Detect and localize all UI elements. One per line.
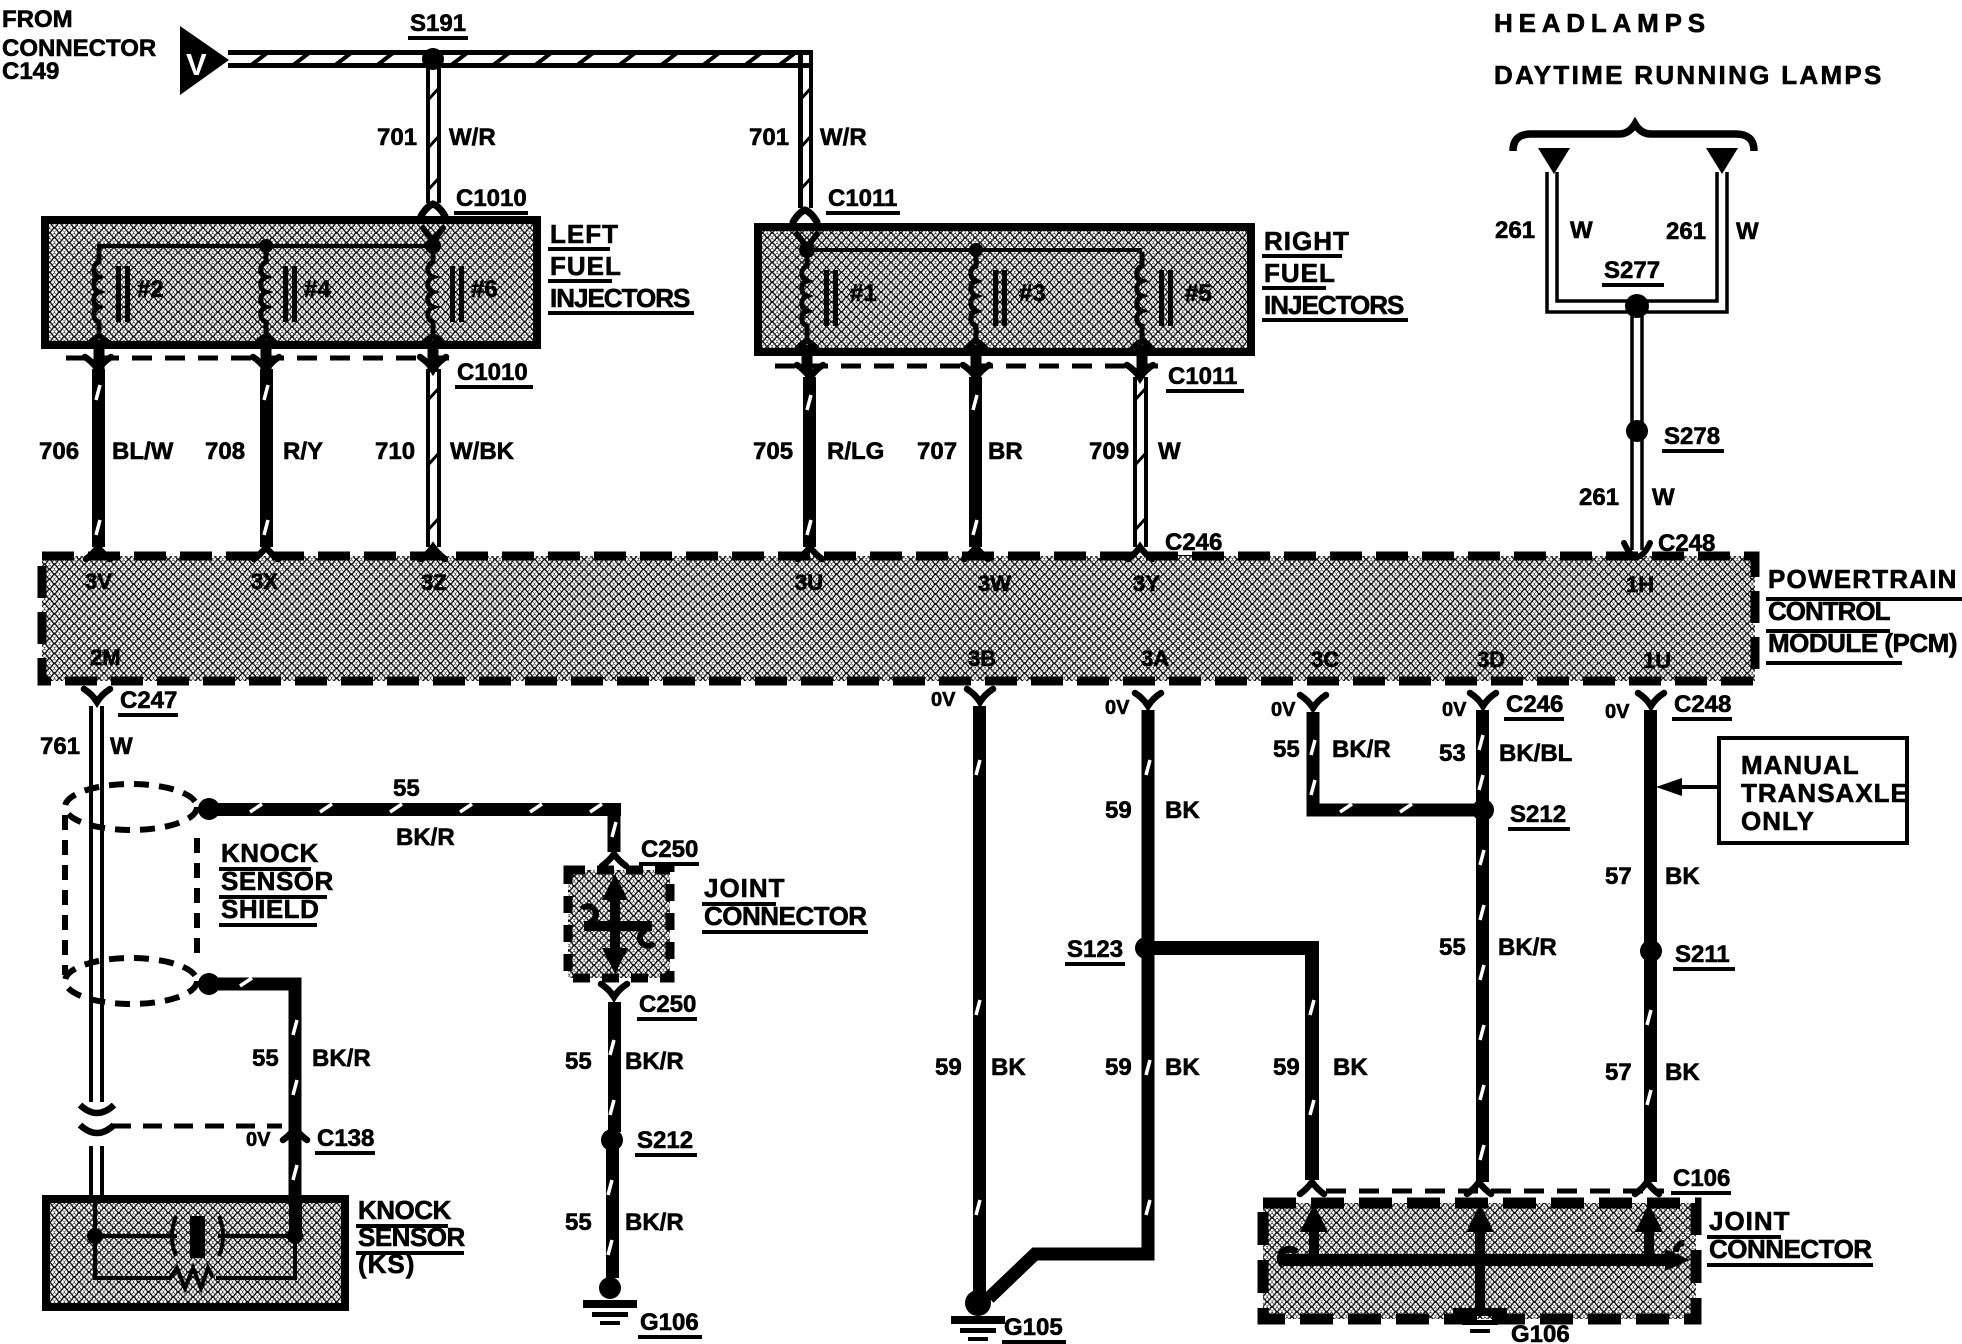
svg-text:701: 701	[749, 124, 789, 151]
svg-text:0V: 0V	[931, 689, 956, 711]
svg-text:W/BK: W/BK	[450, 438, 515, 465]
svg-text:G106: G106	[640, 1309, 699, 1336]
svg-text:JOINT: JOINT	[1709, 1206, 1791, 1236]
svg-text:#5: #5	[1185, 280, 1212, 307]
svg-text:55: 55	[252, 1045, 279, 1072]
svg-text:C138: C138	[317, 1125, 374, 1152]
svg-text:INJECTORS: INJECTORS	[1264, 290, 1404, 320]
svg-text:57: 57	[1605, 863, 1632, 890]
svg-text:261: 261	[1495, 217, 1535, 244]
svg-text:(KS): (KS)	[358, 1249, 415, 1279]
svg-text:55: 55	[1273, 736, 1300, 763]
svg-text:#4: #4	[304, 276, 331, 303]
svg-text:BK/R: BK/R	[312, 1045, 371, 1072]
svg-text:1U: 1U	[1643, 648, 1671, 673]
svg-text:C149: C149	[2, 58, 59, 85]
svg-text:C247: C247	[120, 687, 177, 714]
svg-text:705: 705	[753, 438, 793, 465]
svg-text:3Y: 3Y	[1133, 571, 1160, 596]
svg-text:MANUAL: MANUAL	[1741, 750, 1860, 780]
svg-text:707: 707	[917, 438, 957, 465]
svg-text:59: 59	[935, 1054, 962, 1081]
svg-text:SHIELD: SHIELD	[221, 894, 319, 924]
svg-text:R/Y: R/Y	[283, 438, 323, 465]
svg-text:0V: 0V	[1105, 697, 1130, 719]
svg-text:CONNECTOR: CONNECTOR	[1709, 1234, 1872, 1264]
svg-text:C1010: C1010	[457, 359, 528, 386]
svg-text:W: W	[1736, 218, 1759, 245]
svg-text:HEADLAMPS: HEADLAMPS	[1494, 8, 1711, 38]
svg-text:LEFT: LEFT	[550, 219, 619, 249]
svg-text:S191: S191	[410, 10, 466, 37]
svg-text:ONLY: ONLY	[1741, 806, 1815, 836]
svg-text:761: 761	[40, 733, 80, 760]
svg-text:BK: BK	[1165, 1054, 1200, 1081]
svg-text:W/R: W/R	[449, 124, 496, 151]
svg-text:JOINT: JOINT	[704, 873, 786, 903]
svg-text:BK: BK	[991, 1054, 1026, 1081]
svg-text:261: 261	[1579, 484, 1619, 511]
svg-text:BK: BK	[1165, 797, 1200, 824]
svg-text:261: 261	[1666, 218, 1706, 245]
svg-text:55: 55	[393, 775, 420, 802]
svg-text:W: W	[1652, 484, 1675, 511]
svg-text:55: 55	[1439, 934, 1466, 961]
svg-text:706: 706	[39, 438, 79, 465]
svg-text:1H: 1H	[1626, 572, 1654, 597]
svg-text:KNOCK: KNOCK	[358, 1195, 452, 1225]
svg-text:BK/R: BK/R	[396, 824, 455, 851]
svg-text:CONNECTOR: CONNECTOR	[704, 901, 867, 931]
svg-text:C250: C250	[639, 991, 696, 1018]
svg-text:59: 59	[1273, 1054, 1300, 1081]
svg-text:709: 709	[1089, 438, 1129, 465]
svg-text:3Z: 3Z	[421, 570, 447, 595]
svg-text:C250: C250	[641, 836, 698, 863]
svg-text:G105: G105	[1004, 1314, 1063, 1341]
svg-text:C1011: C1011	[828, 185, 897, 212]
svg-text:701: 701	[377, 124, 417, 151]
svg-text:55: 55	[565, 1048, 592, 1075]
svg-text:3A: 3A	[1141, 646, 1169, 671]
svg-text:0V: 0V	[1442, 699, 1467, 721]
svg-text:3X: 3X	[251, 569, 278, 594]
svg-text:RIGHT: RIGHT	[1264, 226, 1350, 256]
svg-text:G106: G106	[1511, 1321, 1570, 1344]
svg-text:53: 53	[1439, 740, 1466, 767]
svg-text:59: 59	[1105, 1054, 1132, 1081]
svg-text:W: W	[1158, 438, 1181, 465]
svg-text:C248: C248	[1674, 691, 1731, 718]
svg-text:DAYTIME RUNNING LAMPS: DAYTIME RUNNING LAMPS	[1494, 60, 1884, 90]
svg-text:BK/R: BK/R	[1498, 934, 1557, 961]
svg-text:708: 708	[205, 438, 245, 465]
svg-text:BK: BK	[1665, 863, 1700, 890]
svg-text:FROM: FROM	[2, 6, 73, 33]
svg-text:#6: #6	[471, 276, 498, 303]
svg-text:3B: 3B	[968, 646, 996, 671]
svg-text:BK: BK	[1665, 1059, 1700, 1086]
svg-text:BR: BR	[988, 438, 1023, 465]
svg-text:57: 57	[1605, 1059, 1632, 1086]
svg-text:FUEL: FUEL	[1264, 258, 1336, 288]
svg-text:55: 55	[565, 1209, 592, 1236]
svg-text:TRANSAXLE: TRANSAXLE	[1741, 778, 1909, 808]
svg-text:KNOCK: KNOCK	[221, 838, 319, 868]
svg-text:MODULE (PCM): MODULE (PCM)	[1768, 628, 1957, 658]
svg-text:BK/R: BK/R	[625, 1048, 684, 1075]
svg-text:0V: 0V	[1605, 701, 1630, 723]
svg-text:CONTROL: CONTROL	[1768, 596, 1891, 626]
svg-text:V: V	[186, 47, 207, 82]
svg-text:710: 710	[375, 438, 415, 465]
svg-text:SENSOR: SENSOR	[358, 1222, 466, 1252]
svg-text:BK/BL: BK/BL	[1499, 740, 1572, 767]
svg-text:R/LG: R/LG	[827, 438, 884, 465]
svg-text:S277: S277	[1604, 257, 1660, 284]
svg-text:3V: 3V	[85, 569, 112, 594]
svg-text:INJECTORS: INJECTORS	[550, 283, 690, 313]
svg-text:SENSOR: SENSOR	[221, 866, 334, 896]
svg-text:W: W	[110, 733, 133, 760]
svg-text:0V: 0V	[1271, 699, 1296, 721]
svg-text:2M: 2M	[90, 645, 121, 670]
svg-text:S212: S212	[637, 1127, 693, 1154]
svg-text:FUEL: FUEL	[550, 251, 622, 281]
svg-text:BK/R: BK/R	[625, 1209, 684, 1236]
svg-text:BL/W: BL/W	[112, 438, 174, 465]
svg-text:C1010: C1010	[456, 185, 527, 212]
svg-text:S212: S212	[1510, 801, 1566, 828]
svg-text:BK: BK	[1333, 1054, 1368, 1081]
svg-text:C246: C246	[1506, 691, 1563, 718]
svg-text:POWERTRAIN: POWERTRAIN	[1768, 564, 1958, 594]
svg-text:S278: S278	[1664, 423, 1720, 450]
svg-text:3D: 3D	[1477, 647, 1505, 672]
svg-text:C106: C106	[1673, 1165, 1730, 1192]
svg-text:S211: S211	[1675, 941, 1730, 968]
svg-text:BK/R: BK/R	[1332, 736, 1391, 763]
svg-text:#3: #3	[1019, 280, 1046, 307]
svg-text:0V: 0V	[246, 1129, 271, 1151]
svg-text:3W: 3W	[978, 571, 1011, 596]
svg-text:#1: #1	[850, 280, 877, 307]
svg-text:3U: 3U	[795, 570, 823, 595]
svg-text:59: 59	[1105, 797, 1132, 824]
svg-text:3C: 3C	[1311, 647, 1339, 672]
svg-text:S123: S123	[1067, 936, 1123, 963]
svg-text:W/R: W/R	[820, 124, 867, 151]
svg-text:W: W	[1570, 217, 1593, 244]
svg-text:C1011: C1011	[1168, 363, 1237, 390]
svg-text:#2: #2	[137, 276, 164, 303]
